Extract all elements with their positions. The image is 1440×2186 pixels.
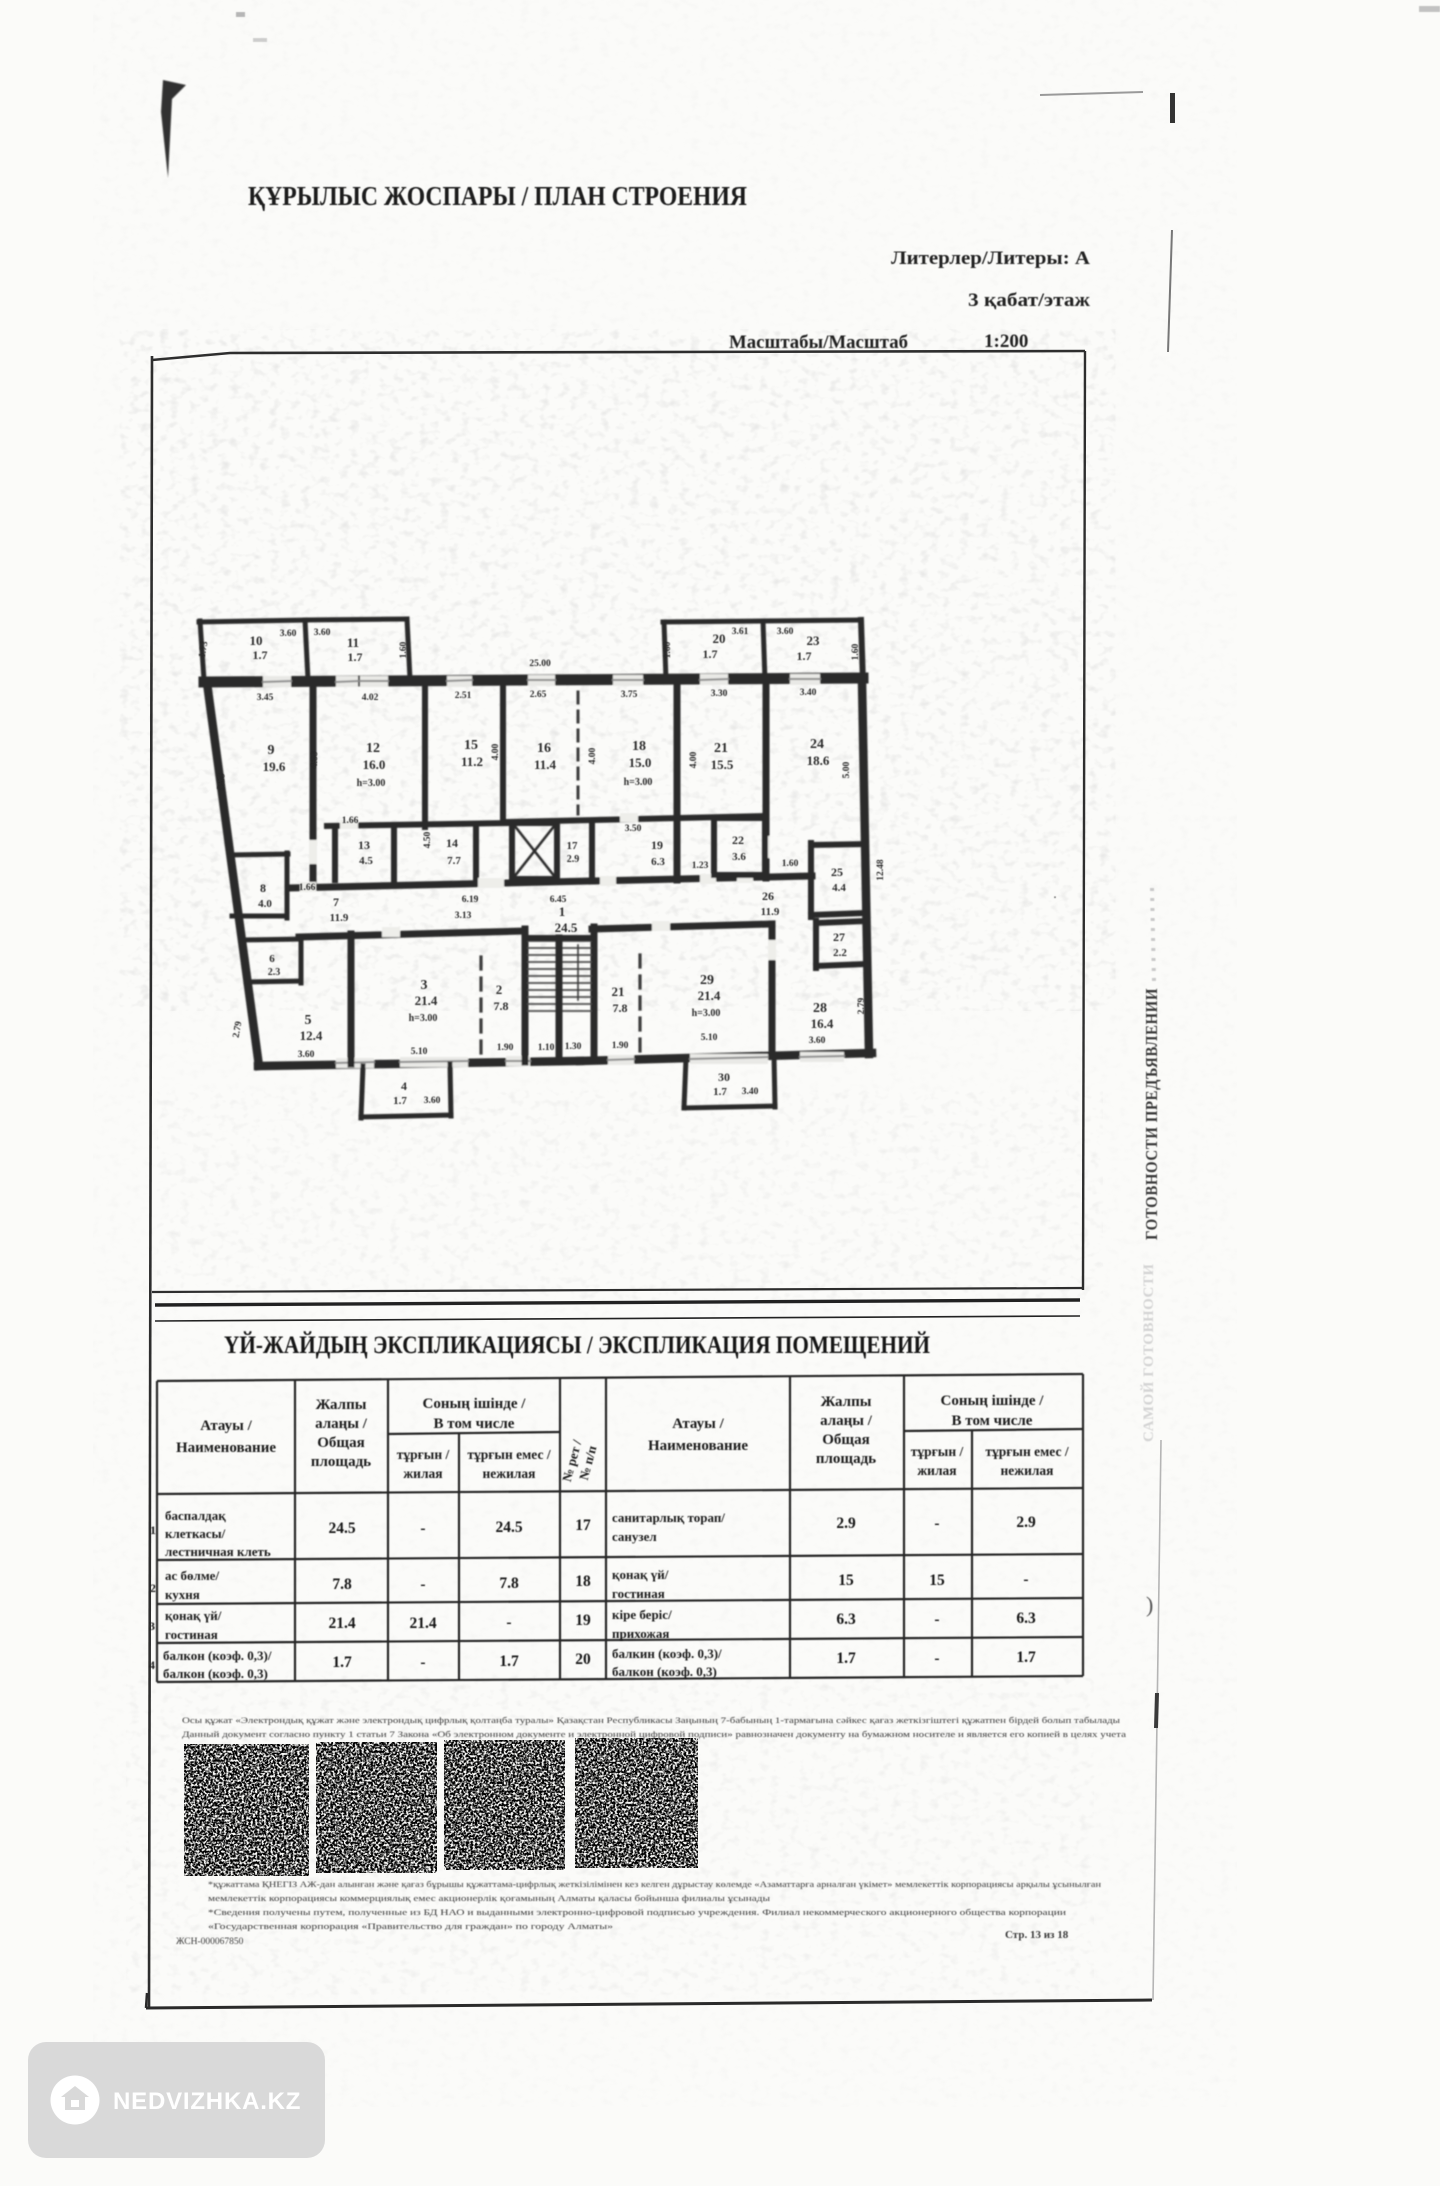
svg-text:1.7: 1.7 bbox=[499, 1653, 519, 1670]
svg-text:7.8: 7.8 bbox=[613, 1001, 628, 1015]
svg-text:h=3.00: h=3.00 bbox=[357, 778, 386, 789]
svg-text:-: - bbox=[420, 1520, 425, 1537]
svg-text:3 қабат/этаж: 3 қабат/этаж bbox=[968, 290, 1090, 311]
svg-text:5.00: 5.00 bbox=[842, 761, 852, 778]
svg-text:Осы құжат «Электрондық құжат ж: Осы құжат «Электрондық құжат және электр… bbox=[182, 1715, 1120, 1725]
svg-text:8: 8 bbox=[260, 881, 266, 895]
svg-text:ас бөлме/: ас бөлме/ bbox=[165, 1568, 219, 1583]
svg-text:24.5: 24.5 bbox=[495, 1519, 522, 1536]
svg-text:3.60: 3.60 bbox=[809, 1036, 826, 1046]
svg-text:алаңы /: алаңы / bbox=[315, 1416, 368, 1432]
svg-text:11.9: 11.9 bbox=[330, 912, 349, 924]
svg-text:Литерлер/Литеры: А: Литерлер/Литеры: А bbox=[891, 248, 1090, 269]
svg-text:Наименование: Наименование bbox=[648, 1438, 748, 1454]
svg-text:1.7: 1.7 bbox=[713, 1086, 727, 1098]
svg-text:тұрғын /: тұрғын / bbox=[397, 1447, 450, 1462]
svg-text:21.4: 21.4 bbox=[328, 1615, 355, 1632]
svg-text:ҚҰРЫЛЫС ЖОСПАРЫ / ПЛАН СТРОЕНИ: ҚҰРЫЛЫС ЖОСПАРЫ / ПЛАН СТРОЕНИЯ bbox=[248, 180, 747, 211]
svg-text:1.90: 1.90 bbox=[497, 1043, 514, 1053]
svg-text:7.7: 7.7 bbox=[447, 855, 461, 867]
svg-text:1.66: 1.66 bbox=[342, 816, 359, 826]
svg-text:Соның ішінде /: Соның ішінде / bbox=[423, 1396, 527, 1412]
svg-text:баспалдақ: баспалдақ bbox=[165, 1508, 226, 1523]
svg-text:19: 19 bbox=[575, 1612, 591, 1629]
svg-text:24.5: 24.5 bbox=[328, 1520, 355, 1537]
svg-text:5: 5 bbox=[305, 1013, 312, 1028]
svg-text:гостиная: гостиная bbox=[612, 1586, 665, 1601]
svg-text:3.45: 3.45 bbox=[257, 693, 274, 703]
svg-text:Общая: Общая bbox=[822, 1432, 869, 1448]
svg-text:6.45: 6.45 bbox=[550, 895, 567, 905]
svg-text:3.30: 3.30 bbox=[711, 689, 728, 699]
svg-text:.: . bbox=[1054, 890, 1056, 900]
svg-text:10: 10 bbox=[250, 633, 263, 648]
svg-text:площадь: площадь bbox=[311, 1454, 371, 1470]
svg-text:h=3.00: h=3.00 bbox=[692, 1008, 721, 1019]
svg-text:3: 3 bbox=[149, 1619, 155, 1633]
svg-text:2.65: 2.65 bbox=[530, 690, 547, 700]
svg-text:Атауы /: Атауы / bbox=[672, 1416, 724, 1432]
svg-text:Общая: Общая bbox=[317, 1435, 364, 1451]
svg-text:балкин (коэф. 0,3)/: балкин (коэф. 0,3)/ bbox=[612, 1646, 722, 1661]
svg-text:11.2: 11.2 bbox=[461, 754, 483, 769]
svg-text:1.7: 1.7 bbox=[332, 1654, 352, 1671]
svg-text:тұрғын емес /: тұрғын емес / bbox=[985, 1444, 1068, 1459]
svg-text:17: 17 bbox=[567, 840, 579, 852]
svg-text:балкон (коэф. 0,3): балкон (коэф. 0,3) bbox=[612, 1664, 717, 1679]
svg-text:2.2: 2.2 bbox=[833, 947, 847, 959]
svg-text:1.7: 1.7 bbox=[1016, 1649, 1036, 1666]
svg-text:2.51: 2.51 bbox=[455, 691, 472, 701]
svg-text:Атауы /: Атауы / bbox=[200, 1418, 252, 1434]
svg-text:3.60: 3.60 bbox=[777, 627, 794, 637]
svg-text:Соның ішінде /: Соның ішінде / bbox=[941, 1393, 1045, 1409]
svg-text:14: 14 bbox=[446, 836, 458, 850]
svg-text:11.9: 11.9 bbox=[761, 906, 780, 918]
svg-text:В том числе: В том числе bbox=[952, 1413, 1033, 1429]
svg-text:Стр. 13 из 18: Стр. 13 из 18 bbox=[1005, 1929, 1069, 1941]
svg-text:«Государственная корпорация «П: «Государственная корпорация «Правительст… bbox=[208, 1921, 613, 1931]
svg-text:6: 6 bbox=[269, 953, 275, 965]
svg-text:қонақ үй/: қонақ үй/ bbox=[612, 1567, 669, 1582]
svg-text:балкон (коэф. 0,3): балкон (коэф. 0,3) bbox=[163, 1666, 268, 1681]
svg-text:3.50: 3.50 bbox=[625, 824, 642, 834]
svg-text:3.75: 3.75 bbox=[621, 690, 638, 700]
svg-text:кухня: кухня bbox=[165, 1587, 200, 1602]
svg-text:1.7: 1.7 bbox=[348, 650, 363, 664]
svg-text:11.4: 11.4 bbox=[534, 757, 557, 772]
svg-text:лестничная клеть: лестничная клеть bbox=[165, 1544, 271, 1559]
svg-text:4.02: 4.02 bbox=[362, 693, 379, 703]
svg-text:19: 19 bbox=[651, 838, 663, 852]
svg-text:4.00: 4.00 bbox=[310, 751, 321, 768]
svg-text:15.0: 15.0 bbox=[629, 755, 652, 770]
svg-text:13: 13 bbox=[358, 838, 370, 852]
svg-text:1:200: 1:200 bbox=[984, 331, 1028, 352]
svg-text:12: 12 bbox=[366, 741, 380, 756]
svg-text:4.5: 4.5 bbox=[359, 855, 373, 867]
svg-text:4: 4 bbox=[401, 1079, 407, 1093]
svg-text:3.60: 3.60 bbox=[298, 1050, 315, 1060]
svg-text:2: 2 bbox=[496, 982, 503, 997]
svg-text:12.4: 12.4 bbox=[300, 1028, 323, 1043]
svg-text:1.7: 1.7 bbox=[797, 649, 812, 663]
svg-text:нежилая: нежилая bbox=[483, 1466, 536, 1481]
svg-text:16.0: 16.0 bbox=[363, 757, 386, 772]
svg-text:-: - bbox=[420, 1654, 425, 1671]
svg-text:7.8: 7.8 bbox=[494, 999, 509, 1013]
svg-text:-: - bbox=[506, 1614, 511, 1631]
svg-text:26: 26 bbox=[762, 889, 774, 903]
svg-text:алаңы /: алаңы / bbox=[820, 1413, 873, 1429]
svg-text:15: 15 bbox=[929, 1572, 945, 1589]
svg-text:12.48: 12.48 bbox=[876, 859, 886, 881]
svg-text:1.7: 1.7 bbox=[703, 647, 718, 661]
svg-text:2.79: 2.79 bbox=[857, 997, 867, 1014]
svg-text:гостиная: гостиная bbox=[165, 1627, 218, 1642]
svg-text:санузел: санузел bbox=[612, 1529, 657, 1544]
svg-text:клеткасы/: клеткасы/ bbox=[165, 1526, 226, 1541]
svg-text:мемлекеттік корпорациясы комме: мемлекеттік корпорациясы коммерциялық ем… bbox=[208, 1893, 770, 1903]
svg-text:18: 18 bbox=[632, 739, 646, 754]
svg-text:жилая: жилая bbox=[917, 1463, 956, 1478]
svg-text:ҮЙ-ЖАЙДЫҢ ЭКСПЛИКАЦИЯСЫ / ЭКСП: ҮЙ-ЖАЙДЫҢ ЭКСПЛИКАЦИЯСЫ / ЭКСПЛИКАЦИЯ ПО… bbox=[224, 1331, 930, 1359]
svg-text:-: - bbox=[934, 1650, 939, 1667]
svg-text:15: 15 bbox=[838, 1572, 854, 1589]
svg-text:3.60: 3.60 bbox=[280, 629, 297, 639]
svg-text:h=3.00: h=3.00 bbox=[409, 1013, 438, 1024]
svg-text:-: - bbox=[1023, 1571, 1028, 1588]
svg-text:5.10: 5.10 bbox=[701, 1033, 718, 1043]
svg-text:6.19: 6.19 bbox=[462, 895, 479, 905]
svg-text:-: - bbox=[934, 1515, 939, 1532]
svg-text:11: 11 bbox=[347, 635, 359, 650]
svg-text:21.4: 21.4 bbox=[409, 1615, 436, 1632]
svg-text:4.00: 4.00 bbox=[689, 751, 699, 768]
svg-text:площадь: площадь bbox=[816, 1451, 876, 1467]
svg-text:1.60: 1.60 bbox=[663, 641, 673, 658]
svg-text:1.10: 1.10 bbox=[538, 1043, 555, 1053]
svg-text:Жалпы: Жалпы bbox=[316, 1397, 367, 1413]
svg-text:прихожая: прихожая bbox=[612, 1626, 669, 1641]
svg-text:-: - bbox=[934, 1611, 939, 1628]
svg-text:7: 7 bbox=[333, 895, 339, 909]
svg-text:Масштабы/Масштаб: Масштабы/Масштаб bbox=[729, 332, 908, 353]
svg-text:1.66: 1.66 bbox=[299, 883, 316, 893]
svg-text:21: 21 bbox=[714, 741, 728, 756]
svg-text:NEDVIZHKA.KZ: NEDVIZHKA.KZ bbox=[113, 2088, 301, 2115]
svg-text:Данный документ согласно пункт: Данный документ согласно пункту 1 статьи… bbox=[182, 1729, 1126, 1739]
svg-text:санитарлық торап/: санитарлық торап/ bbox=[612, 1510, 725, 1525]
svg-text:28: 28 bbox=[813, 1001, 827, 1016]
svg-text:В том числе: В том числе bbox=[434, 1416, 515, 1432]
svg-text:қонақ үй/: қонақ үй/ bbox=[165, 1608, 222, 1623]
svg-text:нежилая: нежилая bbox=[1001, 1463, 1054, 1478]
svg-text:САМОЙ ГОТОВНОСТИ: САМОЙ ГОТОВНОСТИ bbox=[1140, 1263, 1157, 1442]
svg-text:3.60: 3.60 bbox=[314, 628, 331, 638]
svg-text:1.30: 1.30 bbox=[565, 1042, 582, 1052]
svg-text:1.90: 1.90 bbox=[612, 1041, 629, 1051]
svg-text:): ) bbox=[1146, 1592, 1153, 1617]
svg-text:1.7: 1.7 bbox=[836, 1650, 856, 1667]
svg-text:18: 18 bbox=[575, 1573, 591, 1590]
svg-text:1.7: 1.7 bbox=[393, 1095, 407, 1107]
svg-text:25: 25 bbox=[831, 865, 843, 879]
svg-text:18.6: 18.6 bbox=[807, 753, 830, 768]
svg-text:1.60: 1.60 bbox=[399, 641, 409, 658]
svg-text:2.3: 2.3 bbox=[268, 967, 281, 978]
svg-text:19.6: 19.6 bbox=[263, 759, 286, 774]
svg-text:2.9: 2.9 bbox=[567, 854, 580, 865]
svg-text:тұрғын емес /: тұрғын емес / bbox=[467, 1447, 550, 1462]
svg-text:*Сведения получены путем, полу: *Сведения получены путем, полученные из … bbox=[208, 1907, 1066, 1917]
svg-text:1.60: 1.60 bbox=[851, 643, 861, 660]
svg-text:30: 30 bbox=[718, 1070, 730, 1084]
svg-text:Жалпы: Жалпы bbox=[821, 1394, 872, 1410]
svg-text:3: 3 bbox=[421, 978, 428, 993]
svg-text:5.50: 5.50 bbox=[216, 773, 227, 791]
svg-text:20: 20 bbox=[575, 1651, 591, 1668]
svg-text:9: 9 bbox=[268, 743, 275, 758]
svg-text:7.8: 7.8 bbox=[499, 1575, 519, 1592]
svg-text:балкон (коэф. 0,3)/: балкон (коэф. 0,3)/ bbox=[163, 1648, 272, 1663]
svg-text:21.4: 21.4 bbox=[415, 993, 438, 1008]
svg-text:кіре беріс/: кіре беріс/ bbox=[612, 1607, 672, 1622]
svg-text:4.0: 4.0 bbox=[258, 898, 272, 910]
svg-text:тұрғын /: тұрғын / bbox=[911, 1444, 964, 1459]
svg-text:6.3: 6.3 bbox=[836, 1611, 856, 1628]
svg-text:3.60: 3.60 bbox=[424, 1096, 441, 1106]
svg-text:15: 15 bbox=[464, 738, 478, 753]
svg-text:ЖСН-000067850: ЖСН-000067850 bbox=[176, 1937, 244, 1947]
svg-text:29: 29 bbox=[700, 973, 714, 988]
svg-text:24: 24 bbox=[810, 737, 824, 752]
svg-text:4.50: 4.50 bbox=[423, 831, 433, 848]
svg-text:16.4: 16.4 bbox=[811, 1016, 834, 1031]
svg-text:25.00: 25.00 bbox=[529, 659, 551, 669]
svg-text:ГОТОВНОСТИ ПРЕДЪЯВЛЕНИИ: ГОТОВНОСТИ ПРЕДЪЯВЛЕНИИ bbox=[1142, 988, 1161, 1240]
svg-text:21: 21 bbox=[612, 984, 625, 999]
svg-text:1.7: 1.7 bbox=[253, 648, 268, 662]
svg-text:h=3.00: h=3.00 bbox=[624, 777, 653, 788]
svg-text:17: 17 bbox=[575, 1517, 591, 1534]
svg-text:1.23: 1.23 bbox=[692, 861, 709, 871]
svg-text:3.40: 3.40 bbox=[742, 1087, 759, 1097]
svg-text:Наименование: Наименование bbox=[176, 1440, 276, 1456]
svg-text:4.4: 4.4 bbox=[832, 882, 846, 894]
svg-text:3.61: 3.61 bbox=[732, 627, 749, 637]
svg-text:2.9: 2.9 bbox=[1016, 1514, 1036, 1531]
svg-text:21.4: 21.4 bbox=[698, 988, 721, 1003]
svg-text:3.13: 3.13 bbox=[455, 911, 472, 921]
svg-text:4: 4 bbox=[149, 1658, 155, 1672]
svg-text:22: 22 bbox=[732, 833, 744, 847]
svg-text:5.10: 5.10 bbox=[411, 1047, 428, 1057]
svg-text:*құжаттама ҚНЕГІЗ АЖ-дан алынғ: *құжаттама ҚНЕГІЗ АЖ-дан алынған және қа… bbox=[208, 1879, 1101, 1889]
svg-text:20: 20 bbox=[713, 631, 726, 646]
svg-text:16: 16 bbox=[537, 741, 551, 756]
svg-text:7.8: 7.8 bbox=[332, 1576, 352, 1593]
svg-text:4.00: 4.00 bbox=[491, 743, 501, 760]
svg-text:2: 2 bbox=[150, 1581, 156, 1595]
svg-text:23: 23 bbox=[807, 633, 821, 648]
svg-text:15.5: 15.5 bbox=[711, 757, 734, 772]
svg-text:2.9: 2.9 bbox=[836, 1515, 856, 1532]
svg-text:4.00: 4.00 bbox=[588, 747, 598, 764]
svg-text:24.5: 24.5 bbox=[555, 920, 578, 935]
svg-text:1.60: 1.60 bbox=[782, 859, 799, 869]
svg-text:3.6: 3.6 bbox=[732, 851, 746, 863]
svg-text:6.3: 6.3 bbox=[1016, 1610, 1036, 1627]
svg-text:27: 27 bbox=[833, 930, 845, 944]
svg-text:1: 1 bbox=[150, 1523, 156, 1537]
svg-text:3.40: 3.40 bbox=[800, 688, 817, 698]
svg-text:1: 1 bbox=[559, 904, 566, 919]
svg-text:-: - bbox=[420, 1576, 425, 1593]
svg-text:жилая: жилая bbox=[403, 1466, 442, 1481]
svg-text:6.3: 6.3 bbox=[651, 856, 665, 868]
